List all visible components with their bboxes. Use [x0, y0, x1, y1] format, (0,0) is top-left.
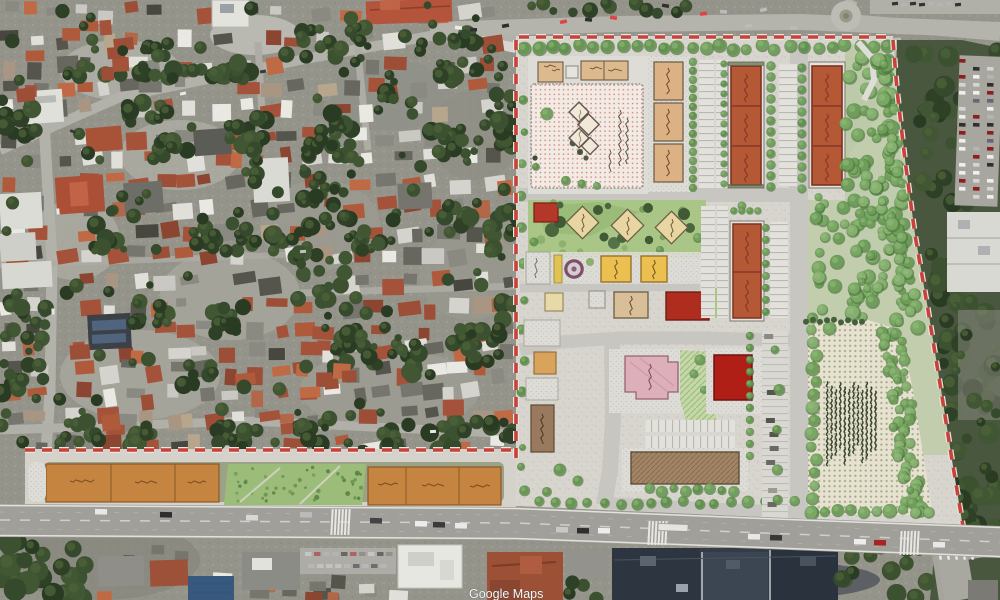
svg-text:Google Maps: Google Maps: [469, 587, 543, 600]
